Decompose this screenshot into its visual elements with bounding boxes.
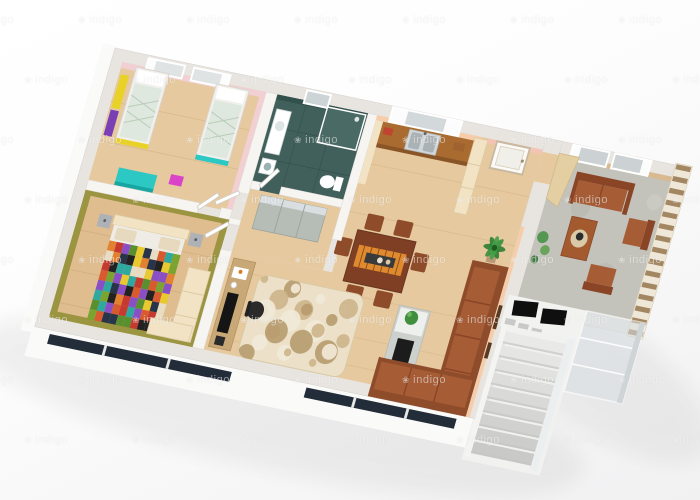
floor-plan-scene: ❀indigo❀indigo❀indigo❀indigo❀indigo❀indi… [0, 0, 700, 500]
front-door [490, 141, 530, 174]
skylight-panel [540, 308, 567, 325]
skylight-panel [512, 300, 539, 317]
floor-plan-render [0, 0, 700, 500]
